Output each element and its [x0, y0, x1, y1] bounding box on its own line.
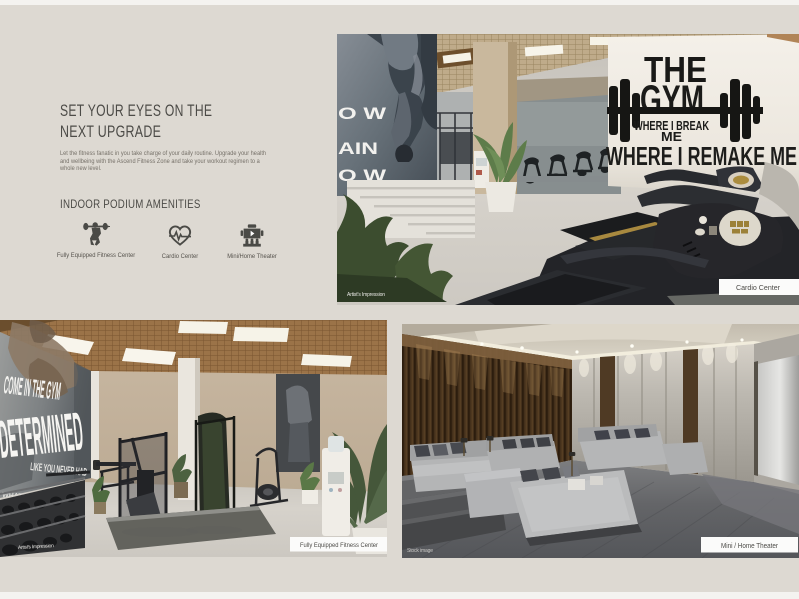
svg-text:Mini / Home Theater: Mini / Home Theater — [721, 543, 779, 550]
svg-text:GYM: GYM — [640, 78, 704, 122]
svg-text:Stock image: Stock image — [407, 548, 433, 554]
svg-text:DETERMINED: DETERMINED — [0, 401, 86, 469]
svg-text:Cardio Center: Cardio Center — [736, 285, 781, 292]
svg-text:Artist's Impression: Artist's Impression — [347, 292, 385, 298]
svg-text:O W: O W — [338, 104, 387, 123]
svg-text:AIN: AIN — [338, 139, 378, 158]
svg-text:Fully Equipped Fitness Center: Fully Equipped Fitness Center — [300, 542, 379, 549]
